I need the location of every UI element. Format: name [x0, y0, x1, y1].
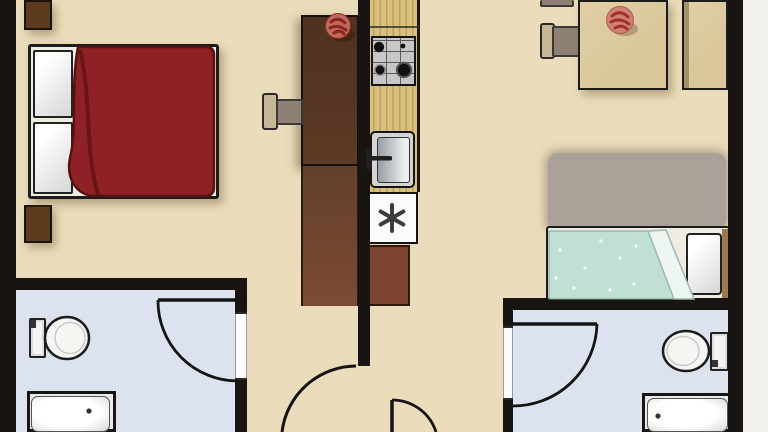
- shower-left-tray: [31, 396, 110, 432]
- wall-bathroom-right-left-upper: [503, 310, 513, 326]
- desk-chair-seat: [276, 99, 303, 125]
- toilet-left-tank: [29, 318, 46, 358]
- counter-seam: [368, 26, 420, 28]
- wall-bathroom-right-left-lower: [503, 400, 513, 432]
- pillow-top: [33, 50, 73, 118]
- nightstand-top: [24, 0, 52, 30]
- doorway-bathroom-right: [503, 326, 513, 400]
- door-arc-entry: [392, 400, 436, 432]
- wall-left: [0, 0, 16, 432]
- shower-right-tray: [647, 398, 728, 432]
- sideboard: [682, 0, 728, 90]
- pillow-bottom: [33, 122, 73, 194]
- outside-area: [743, 0, 768, 432]
- wall-right: [728, 0, 743, 432]
- dining-chair-partial: [540, 0, 574, 7]
- desk-upper: [301, 15, 359, 166]
- door-arc-bedroom-hall: [282, 366, 356, 432]
- doorway-bathroom-left: [235, 312, 247, 380]
- toilet-right-tank: [710, 332, 729, 371]
- wall-bathroom-left-top: [16, 278, 247, 290]
- nightstand-bottom: [24, 205, 52, 243]
- kitchen-lower-cabinet: [366, 245, 410, 306]
- dining-table: [578, 0, 668, 90]
- sink-basin: [377, 137, 410, 183]
- wall-bathroom-right-top: [503, 298, 743, 310]
- area-rug: [548, 153, 726, 230]
- wall-bathroom-left-right-lower: [235, 380, 247, 432]
- wall-kitchen-divider: [358, 0, 370, 366]
- single-bed-pillow: [686, 233, 722, 295]
- freezer: [366, 192, 418, 244]
- wall-bathroom-left-right-upper: [235, 290, 247, 312]
- floor-plan: [0, 0, 768, 432]
- desk-lower-cabinet: [301, 166, 359, 306]
- stove: [371, 36, 416, 86]
